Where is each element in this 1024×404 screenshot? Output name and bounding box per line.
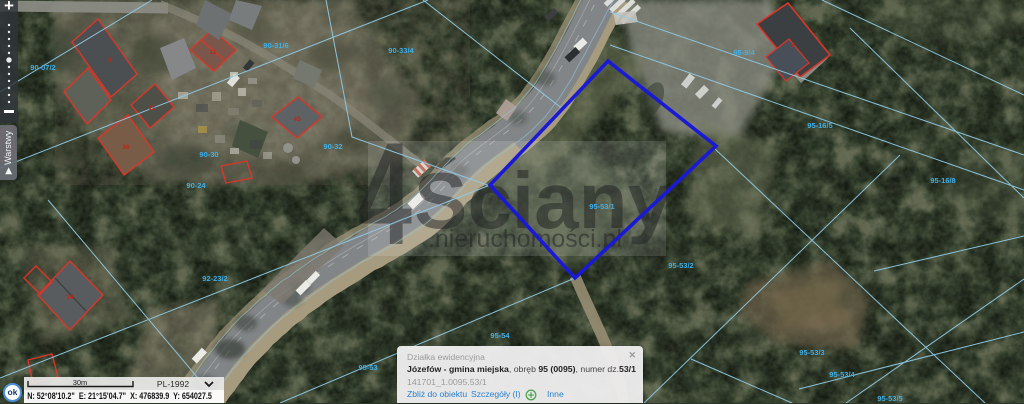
svg-text:30m: 30m: [73, 378, 88, 387]
svg-text:PL-1992: PL-1992: [157, 379, 189, 389]
